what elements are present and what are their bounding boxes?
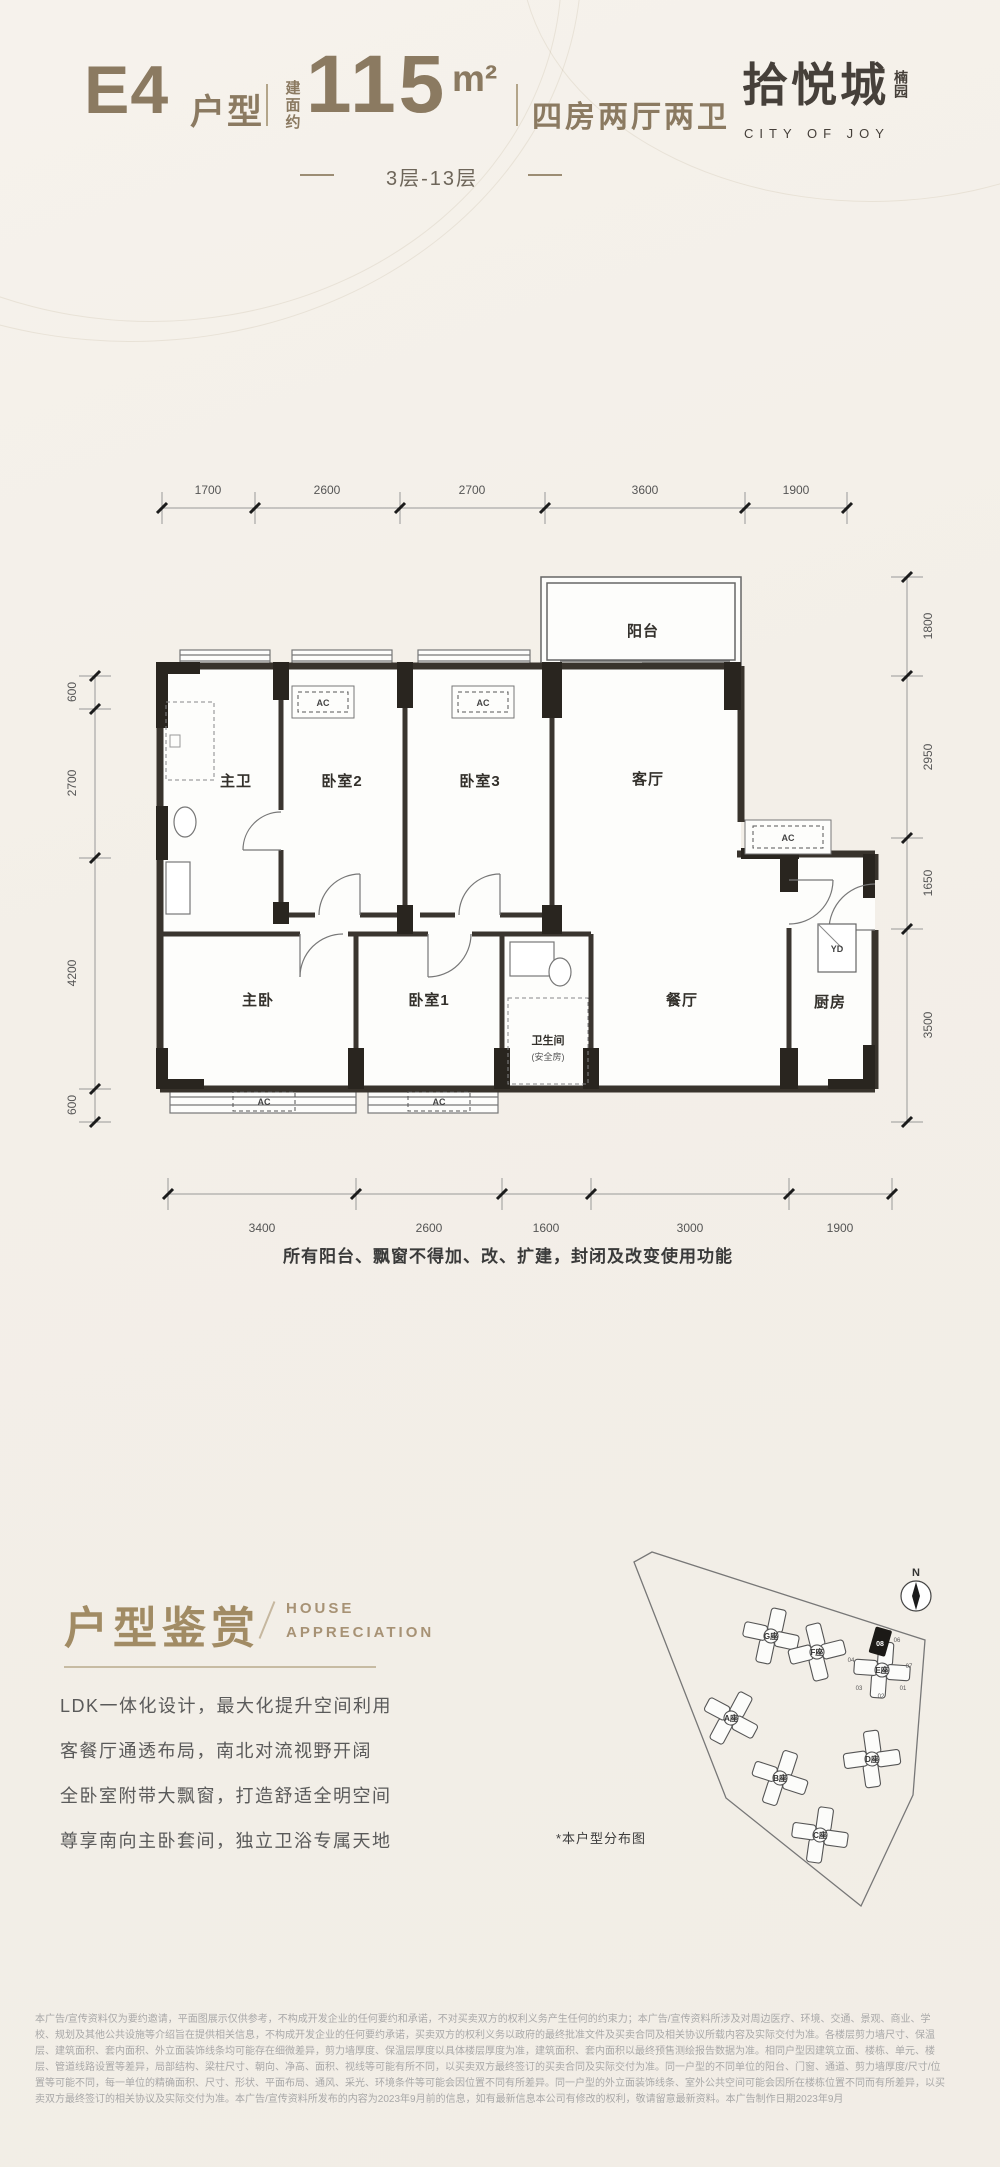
floorplan-note: 所有阳台、飘窗不得加、改、扩建，封闭及改变使用功能 <box>283 1246 733 1266</box>
siteplan: N 08 04 03 02 01 07 06 G座 F座 E座 A座 D座 B座… <box>550 1540 1000 1930</box>
room-master-bath: 主卫 <box>220 772 252 790</box>
deco-swirl <box>0 0 562 322</box>
dim-label: 2700 <box>459 483 486 497</box>
room-bedroom3: 卧室3 <box>459 772 500 790</box>
appreciation-title: 户型鉴赏 <box>64 1592 260 1656</box>
appreciation-subtitle-2: APPRECIATION <box>286 1624 434 1641</box>
dim-label: 1650 <box>921 869 935 896</box>
room-bedroom2: 卧室2 <box>321 772 362 790</box>
floor-range-dash <box>300 174 334 176</box>
header-divider <box>266 84 268 126</box>
dim-label: 2700 <box>65 769 79 796</box>
unit-type-label: 户型 <box>190 84 264 135</box>
room-kitchen: 厨房 <box>814 993 846 1011</box>
dim-label: 2950 <box>921 743 935 770</box>
unit-label: 04 <box>848 1658 855 1664</box>
area-value: 115 <box>306 44 447 126</box>
dim-label: 3400 <box>249 1221 276 1235</box>
unit-label: 06 <box>894 1638 901 1644</box>
building-label-b: B座 <box>773 1773 787 1783</box>
unit-code: E4 <box>84 56 169 124</box>
dim-left <box>79 676 111 1122</box>
dim-label: 3500 <box>921 1011 935 1038</box>
brand-logo: 拾悦城 <box>742 62 889 108</box>
appreciation-subtitle-1: HOUSE <box>286 1600 354 1617</box>
dim-label: 1700 <box>195 483 222 497</box>
dim-label: 1600 <box>533 1221 560 1235</box>
disclaimer-line: 置等可能不同，每一单位的精确面积、尺寸、形状、平面布局、通风、采光、环境条件等可… <box>35 2076 967 2092</box>
dim-label: 600 <box>65 682 79 702</box>
dim-label: 1900 <box>827 1221 854 1235</box>
disclaimer: 本广告/宣传资料仅为要约邀请，平面图展示仅供参考，不构成开发企业的任何要约和承诺… <box>35 2012 967 2108</box>
unit-label: 03 <box>856 1686 863 1692</box>
disclaimer-line: 层、管道线路设置等差异，局部结构、梁柱尺寸、朝向、净高、面积、视线等可能有所不同… <box>35 2060 967 2076</box>
dim-label: 1900 <box>783 483 810 497</box>
building-label-d: D座 <box>865 1754 879 1764</box>
dim-label: 3600 <box>632 483 659 497</box>
dim-label: 2600 <box>416 1221 443 1235</box>
building-label-c: C座 <box>813 1830 827 1840</box>
dim-label: 1800 <box>921 612 935 639</box>
site-boundary <box>634 1552 925 1906</box>
dim-bottom <box>168 1178 892 1210</box>
room-bedroom1: 卧室1 <box>408 991 449 1009</box>
dim-label: 600 <box>65 1095 79 1115</box>
building-label-a: A座 <box>724 1713 738 1723</box>
dim-right <box>891 577 923 1122</box>
area-prefix: 建面约 <box>283 80 300 138</box>
building-label-g: G座 <box>764 1631 778 1641</box>
ac-label: AC <box>477 698 490 708</box>
title-slash <box>259 1601 276 1639</box>
ac-label: AC <box>433 1097 446 1107</box>
disclaimer-line: 层、建筑面积、套内面积、外立面装饰线条均可能存在细微差异，剪力墙厚度、保温层厚度… <box>35 2044 967 2060</box>
room-master-bedroom: 主卧 <box>242 991 274 1009</box>
bay-window <box>170 1089 498 1113</box>
brand-slogan: CITY OF JOY <box>744 126 890 141</box>
compass-icon: N <box>901 1567 931 1611</box>
room-bathroom: 卫生间 <box>532 1033 565 1047</box>
room-dining: 餐厅 <box>666 991 698 1009</box>
dim-label: 2600 <box>314 483 341 497</box>
selling-point: 客餐厅通透布局，南北对流视野开阔 <box>60 1737 372 1763</box>
building-label-f: F座 <box>811 1647 824 1657</box>
unit-label: 02 <box>878 1694 885 1700</box>
room-living: 客厅 <box>631 770 664 788</box>
dim-label: 3000 <box>677 1221 704 1235</box>
brand-sub: 楠园 <box>894 70 908 110</box>
dim-label: 4200 <box>65 959 79 986</box>
floor-range-dash <box>528 174 562 176</box>
disclaimer-line: 校、规划及其他公共设施等介绍旨在提供相关信息，不构成开发企业的任何要约承诺，买卖… <box>35 2028 967 2044</box>
yd-label: YD <box>831 944 844 954</box>
highlight-unit-label: 08 <box>876 1641 884 1648</box>
unit-label: 01 <box>900 1686 907 1692</box>
appreciation-divider <box>64 1666 376 1668</box>
room-bathroom-sub: (安全房) <box>532 1051 565 1062</box>
building-label-e: E座 <box>875 1665 888 1675</box>
selling-point: 尊享南向主卧套间，独立卫浴专属天地 <box>60 1827 392 1853</box>
siteplan-caption: *本户型分布图 <box>556 1828 646 1847</box>
compass-label: N <box>912 1567 920 1579</box>
unit-label: 07 <box>906 1664 913 1670</box>
floorplan: 1700 2600 2700 3600 1900 3400 2600 1600 … <box>30 450 970 1300</box>
layout-desc: 四房两厅两卫 <box>532 92 730 136</box>
selling-point: LDK一体化设计，最大化提升空间利用 <box>60 1692 392 1718</box>
disclaimer-line: 卖双方最终签订的相关协议及实际交付为准。本广告/宣传资料所发布的内容为2023年… <box>35 2092 967 2108</box>
area-unit: m² <box>452 58 497 100</box>
header-divider <box>516 84 518 126</box>
ac-label: AC <box>317 698 330 708</box>
poster-canvas: E4 户型 建面约 115 m² 四房两厅两卫 拾悦城 楠园 CITY OF J… <box>0 0 1000 2167</box>
selling-point: 全卧室附带大飘窗，打造舒适全明空间 <box>60 1782 392 1808</box>
room-balcony: 阳台 <box>627 622 659 640</box>
ac-label: AC <box>258 1097 271 1107</box>
ac-label: AC <box>782 833 795 843</box>
disclaimer-line: 本广告/宣传资料仅为要约邀请，平面图展示仅供参考，不构成开发企业的任何要约和承诺… <box>35 2012 967 2028</box>
floor-range: 3层-13层 <box>352 162 512 191</box>
